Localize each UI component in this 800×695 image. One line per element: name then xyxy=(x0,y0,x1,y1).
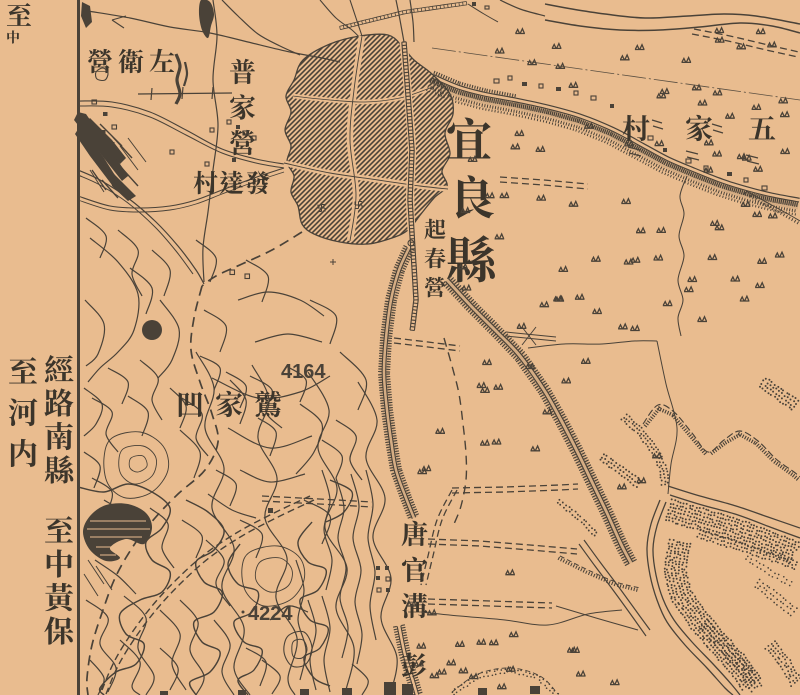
svg-text:4164: 4164 xyxy=(281,361,326,383)
svg-text:4224: 4224 xyxy=(248,603,293,625)
